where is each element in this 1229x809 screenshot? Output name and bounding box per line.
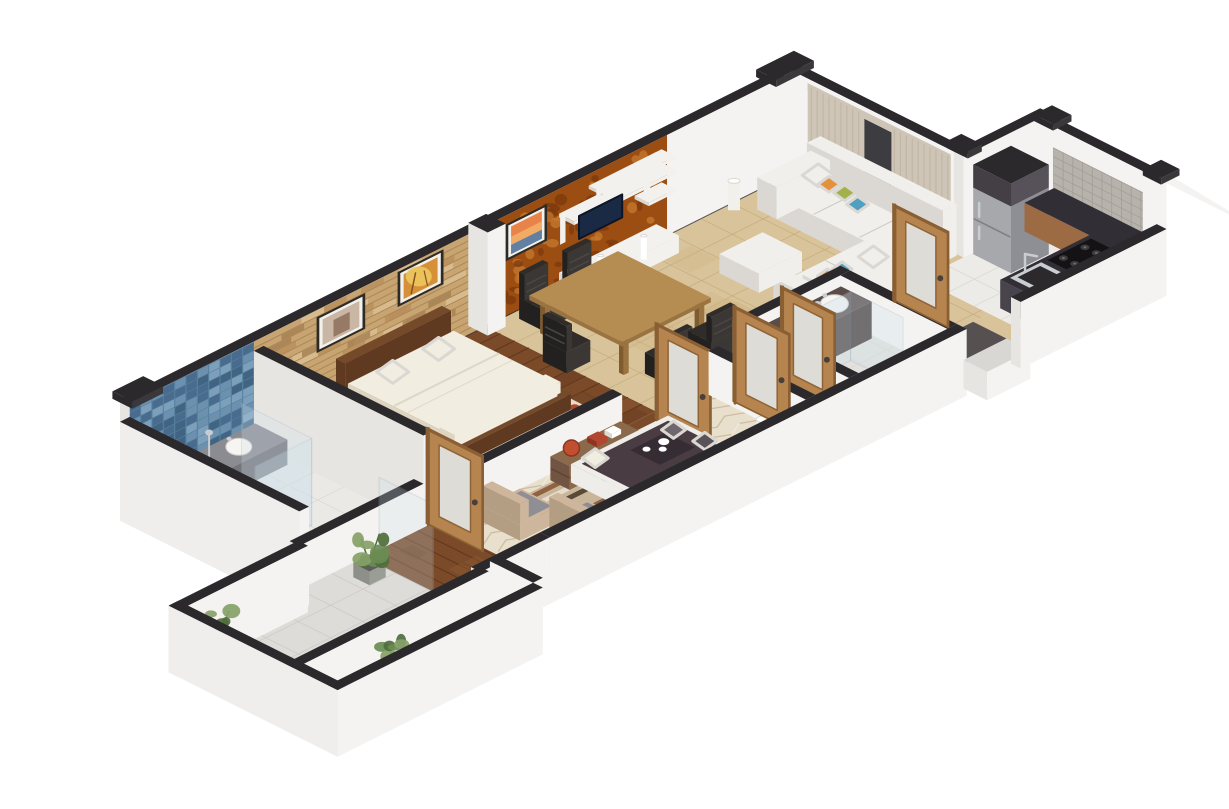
bathroom-1-door-glass — [439, 445, 470, 533]
living-floor-lamp — [728, 181, 740, 210]
bathroom-2-door-glass — [793, 304, 822, 390]
lounge-door-glass — [746, 323, 777, 410]
balcony-plant-1-leaf — [352, 532, 364, 547]
bathroom-2-door-handle — [824, 357, 830, 363]
vase-2-top — [598, 254, 604, 257]
vase-3-top — [641, 235, 647, 238]
lounge-armchair-1-back-se — [520, 500, 529, 525]
bathroom-1-door-handle — [472, 499, 478, 505]
tray-cup-1 — [643, 447, 651, 452]
tv-side-panel — [560, 212, 565, 245]
lounge-door-handle — [779, 377, 785, 383]
console-plate — [563, 440, 579, 456]
tray-teapot — [658, 438, 669, 445]
front-wall-kitchen-sw — [1011, 297, 1021, 369]
dining-chair-1-back-sw — [519, 272, 524, 301]
dining-chair-5-back-se — [567, 324, 572, 353]
vase-3 — [641, 236, 647, 260]
floor-plan-stage: Isometric 3D rendered floor plan of an a… — [0, 0, 1229, 809]
balcony-plant-2-leaf — [222, 604, 240, 618]
balcony-plant-1-leaf — [369, 550, 388, 564]
bedroom-door-handle — [700, 394, 706, 400]
dining-chair-2-back-sw — [562, 250, 567, 278]
balcony-plant-1-leaf — [378, 533, 389, 547]
bedroom-painting-2-blob — [406, 266, 432, 286]
entry-door-glass — [906, 221, 936, 308]
back-wall-pillar-sw — [468, 223, 487, 336]
bathroom-1-showerhead — [205, 429, 213, 435]
entry-door-handle — [937, 275, 943, 281]
living-floor-lamp-top — [728, 178, 740, 183]
bathroom-2-faucet-2 — [822, 293, 827, 297]
back-wall-pillar-se — [488, 224, 506, 336]
bedroom-door-glass — [668, 340, 698, 427]
tray-cup-2 — [659, 447, 667, 452]
isometric-floor-plan-render: Isometric 3D rendered floor plan of an a… — [0, 0, 1229, 809]
balcony-plant-1-leaf — [352, 552, 371, 566]
balcony-sw-parapet-se — [338, 685, 348, 757]
bathroom-1-faucet — [227, 437, 232, 441]
dining-chair-4-back-sw — [706, 314, 711, 343]
